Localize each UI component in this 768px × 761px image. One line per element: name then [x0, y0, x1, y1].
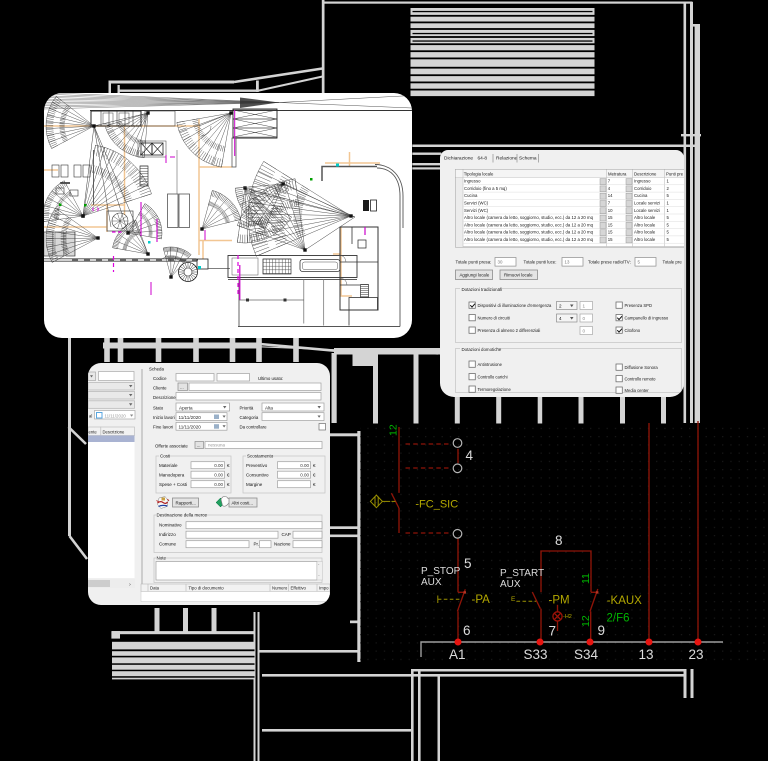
svg-text:Manodopera: Manodopera	[159, 473, 185, 478]
svg-text:Margine: Margine	[246, 482, 263, 487]
svg-text:-KAUX: -KAUX	[607, 595, 642, 607]
svg-text:€: €	[227, 482, 230, 487]
svg-text:A1: A1	[449, 647, 466, 662]
svg-text:Priorità: Priorità	[240, 406, 254, 411]
svg-text:15: 15	[608, 237, 613, 242]
svg-text:P_START: P_START	[500, 568, 544, 579]
svg-text:Nazione: Nazione	[274, 542, 291, 547]
svg-text:Altro locale: Altro locale	[634, 222, 656, 227]
svg-text:23: 23	[689, 647, 704, 662]
svg-text:Termoregolazione: Termoregolazione	[478, 387, 512, 392]
svg-text:€: €	[227, 463, 230, 468]
svg-text:Punti pre: Punti pre	[666, 171, 684, 176]
svg-text:15: 15	[608, 230, 613, 235]
svg-text:Preventivo: Preventivo	[246, 463, 268, 468]
svg-text:15: 15	[608, 215, 613, 220]
svg-text:€: €	[227, 473, 230, 478]
svg-text:5: 5	[464, 556, 472, 571]
svg-text:4: 4	[466, 448, 474, 463]
svg-text:Impo: Impo	[319, 586, 329, 591]
svg-text:Note: Note	[157, 556, 167, 561]
svg-text:30: 30	[498, 260, 503, 265]
svg-text:Stato: Stato	[153, 406, 164, 411]
svg-text:Locale servizi: Locale servizi	[634, 201, 660, 206]
svg-text:Presenza SPD: Presenza SPD	[625, 303, 652, 308]
svg-text:Locale servizi: Locale servizi	[634, 208, 660, 213]
svg-text:Cucina: Cucina	[634, 193, 648, 198]
svg-text:Servizi (WC): Servizi (WC)	[464, 208, 489, 213]
svg-text:Comune: Comune	[159, 542, 177, 547]
svg-text:S33: S33	[524, 647, 548, 662]
svg-text:Destinazione della merce: Destinazione della merce	[157, 513, 208, 518]
svg-text:Relazione: Relazione	[496, 156, 518, 162]
svg-text:Cucina: Cucina	[464, 193, 478, 198]
svg-text:64-8: 64-8	[478, 156, 488, 162]
svg-text:Aperta: Aperta	[179, 405, 193, 410]
svg-text:Altro locale: Altro locale	[634, 237, 656, 242]
svg-text:0: 0	[583, 329, 586, 334]
svg-text:Presenza di almeno 2 differenz: Presenza di almeno 2 differenziali	[478, 328, 541, 333]
svg-text:Descrizione: Descrizione	[153, 395, 176, 400]
svg-text:Campanello di ingresso: Campanello di ingresso	[625, 316, 669, 321]
svg-text:Aggiungi locale: Aggiungi locale	[460, 273, 490, 278]
svg-text:Dotazioni domotiche: Dotazioni domotiche	[462, 347, 502, 352]
svg-text:Materiale: Materiale	[159, 463, 178, 468]
svg-text:Totale pre: Totale pre	[663, 260, 683, 265]
svg-text:11/11/2020: 11/11/2020	[105, 414, 127, 419]
svg-text:CAP: CAP	[282, 532, 291, 537]
svg-text:Altri costi...: Altri costi...	[232, 500, 253, 505]
svg-text:AUX: AUX	[500, 579, 521, 590]
svg-text:Dichiarazione: Dichiarazione	[444, 156, 473, 162]
svg-text:0: 0	[583, 316, 586, 321]
svg-text:1: 1	[583, 304, 586, 309]
svg-text:2: 2	[559, 304, 562, 309]
svg-text:10: 10	[608, 208, 613, 213]
svg-text:13: 13	[565, 260, 570, 265]
svg-text:7: 7	[549, 624, 557, 639]
svg-text:Numero: Numero	[272, 586, 288, 591]
svg-text:Consuntivo: Consuntivo	[246, 473, 269, 478]
svg-text:-FC_SIC: -FC_SIC	[415, 498, 458, 510]
svg-text:-PA: -PA	[472, 594, 491, 606]
svg-text:0.00: 0.00	[214, 482, 223, 487]
svg-text:al: al	[89, 414, 92, 419]
svg-text:Corridoio: Corridoio	[634, 186, 652, 191]
svg-text:Dotazioni tradizionali: Dotazioni tradizionali	[462, 287, 503, 292]
svg-text:S34: S34	[574, 647, 599, 662]
svg-text:Da controllare: Da controllare	[240, 425, 268, 430]
svg-text:Indirizzo: Indirizzo	[159, 532, 176, 537]
svg-text:€: €	[313, 473, 316, 478]
svg-text:Antintrusione: Antintrusione	[478, 362, 503, 367]
svg-text:14: 14	[608, 193, 613, 198]
svg-text:P_STOP: P_STOP	[421, 566, 461, 577]
svg-text:Ingresso: Ingresso	[464, 179, 481, 184]
svg-text:Metratura: Metratura	[608, 171, 627, 176]
svg-text:E: E	[511, 596, 516, 603]
svg-text:Altro locale (camera da letto,: Altro locale (camera da letto, soggiorno…	[464, 215, 594, 220]
svg-text:ente: ente	[89, 430, 98, 435]
svg-text:Alta: Alta	[265, 405, 273, 410]
svg-text:Descrizione: Descrizione	[103, 430, 126, 435]
svg-text:Totale punti luce:: Totale punti luce:	[524, 260, 557, 265]
svg-text:Cliente: Cliente	[153, 386, 167, 391]
svg-text:15: 15	[608, 222, 613, 227]
svg-text:Controllo remoto: Controllo remoto	[625, 377, 657, 382]
svg-text:€: €	[313, 482, 316, 487]
svg-text:Media center: Media center	[625, 388, 650, 393]
svg-text:-H2: -H2	[563, 614, 572, 620]
svg-text:Spese + Costi: Spese + Costi	[159, 482, 187, 487]
svg-text:11/11/2020: 11/11/2020	[179, 425, 202, 430]
svg-text:Descrizione: Descrizione	[634, 171, 657, 176]
svg-text:0.00: 0.00	[300, 473, 309, 478]
svg-text:...: ...	[180, 385, 184, 390]
svg-text:Rimuovi locale: Rimuovi locale	[504, 273, 533, 278]
svg-text:nessuna: nessuna	[208, 443, 226, 448]
svg-text:Ingresso: Ingresso	[634, 179, 651, 184]
svg-text:Altro locale: Altro locale	[634, 230, 656, 235]
svg-text:Costi: Costi	[160, 454, 170, 459]
svg-text:8: 8	[555, 533, 563, 548]
svg-text:Scheda: Scheda	[149, 367, 164, 372]
svg-text:Schema: Schema	[519, 156, 537, 162]
svg-text:Ultimo usato:: Ultimo usato:	[258, 376, 283, 381]
svg-text:6: 6	[463, 623, 471, 638]
svg-text:Fine lavori: Fine lavori	[153, 425, 173, 430]
svg-text:Numero di circuiti: Numero di circuiti	[478, 316, 510, 321]
svg-text:Rapporti...: Rapporti...	[176, 500, 196, 505]
svg-text:Nominativo: Nominativo	[159, 523, 182, 528]
svg-text:Inizio lavori: Inizio lavori	[153, 415, 175, 420]
svg-text:12: 12	[388, 424, 400, 436]
svg-text:Effettivo: Effettivo	[291, 586, 307, 591]
svg-text:2/F6: 2/F6	[607, 613, 630, 625]
svg-text:Altro locale: Altro locale	[634, 215, 656, 220]
svg-text:11/11/2020: 11/11/2020	[179, 415, 202, 420]
svg-text:Dispositivi di illuminazione d: Dispositivi di illuminazione d'emergenza	[478, 303, 553, 308]
svg-text:9: 9	[598, 623, 606, 638]
svg-text:Servizi (WC): Servizi (WC)	[464, 201, 489, 206]
svg-text:4: 4	[559, 316, 562, 321]
svg-text:Categoria: Categoria	[240, 415, 259, 420]
svg-text:13: 13	[639, 647, 654, 662]
svg-text:0.00: 0.00	[214, 473, 223, 478]
svg-text:Tipologia locale: Tipologia locale	[464, 171, 494, 176]
svg-text:€: €	[313, 463, 316, 468]
svg-text:Data: Data	[150, 586, 160, 591]
svg-text:AUX: AUX	[421, 577, 442, 588]
svg-text:-PM: -PM	[549, 594, 570, 606]
svg-text:Altro locale (camera da letto,: Altro locale (camera da letto, soggiorno…	[464, 222, 594, 227]
svg-text:Tipo di documento: Tipo di documento	[189, 586, 225, 591]
svg-text:Offerte associate: Offerte associate	[155, 444, 188, 449]
svg-text:12: 12	[580, 615, 592, 627]
svg-text:Corridoio (fino a 5 mq): Corridoio (fino a 5 mq)	[464, 186, 507, 191]
svg-text:Citofono: Citofono	[625, 328, 641, 333]
svg-text:Diffusione Sonora: Diffusione Sonora	[625, 365, 659, 370]
svg-text:0.00: 0.00	[214, 463, 223, 468]
svg-text:11: 11	[580, 573, 592, 584]
svg-text:Totale punti presa:: Totale punti presa:	[456, 260, 492, 265]
svg-text:Totale prese radio/TV:: Totale prese radio/TV:	[588, 260, 631, 265]
svg-text:›: ›	[129, 582, 131, 588]
svg-text:Pr.: Pr.	[254, 542, 260, 547]
svg-text:Codice: Codice	[153, 376, 167, 381]
svg-text:...: ...	[197, 443, 201, 448]
svg-text:Controllo carichi: Controllo carichi	[478, 375, 508, 380]
svg-text:Altro locale (camera da letto,: Altro locale (camera da letto, soggiorno…	[464, 230, 594, 235]
svg-text:Scostamento: Scostamento	[247, 454, 274, 459]
svg-text:0.00: 0.00	[300, 463, 309, 468]
svg-text:Altro locale (camera da letto,: Altro locale (camera da letto, soggiorno…	[464, 237, 594, 242]
